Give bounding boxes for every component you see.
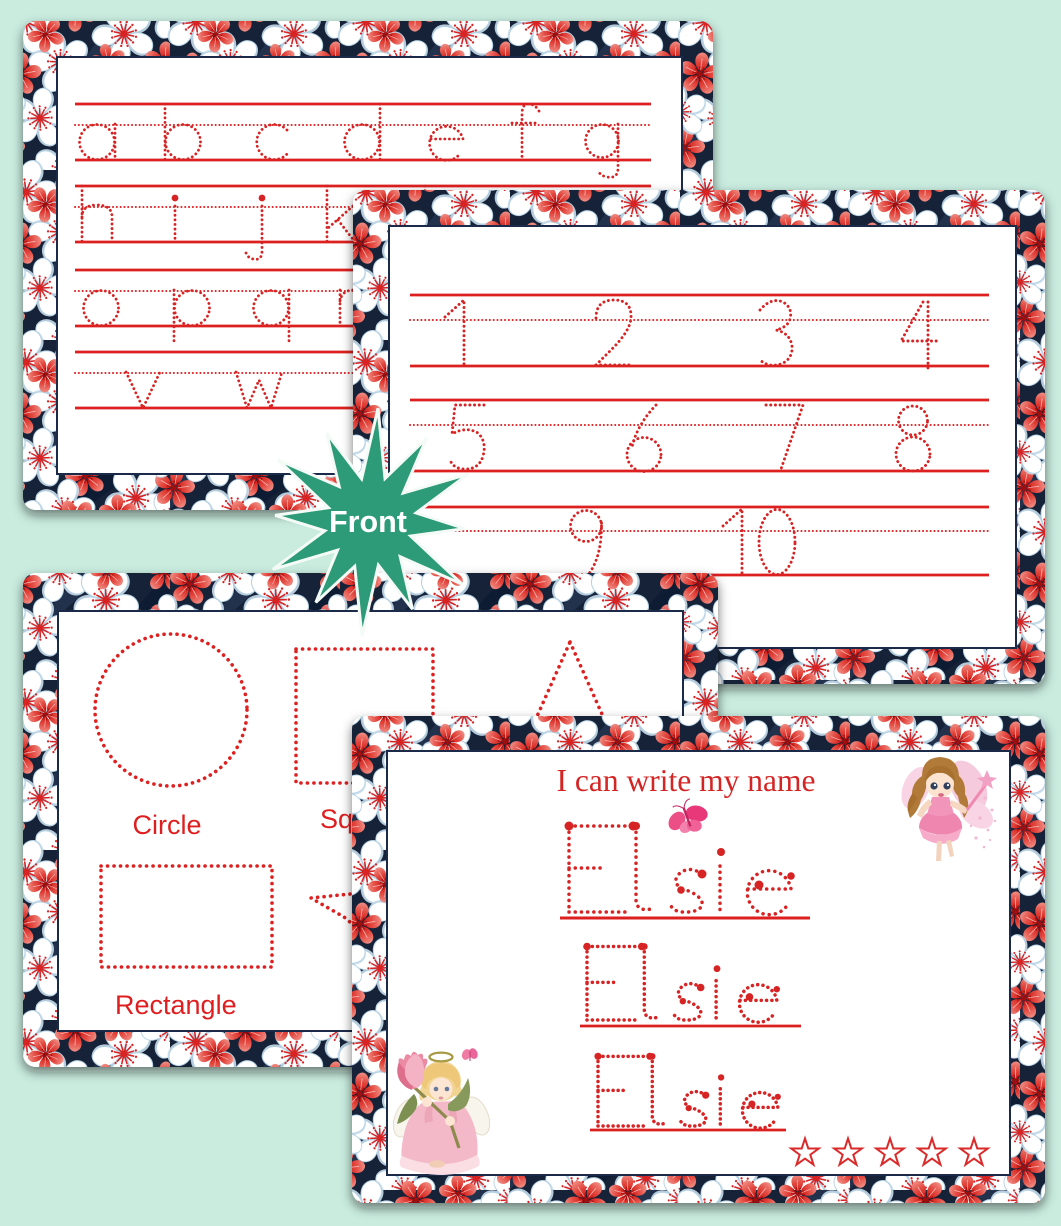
svg-text:Circle: Circle [132,810,201,840]
svg-text:Front: Front [329,505,407,539]
svg-text:I can write my name: I can write my name [557,763,816,798]
svg-text:Rectangle: Rectangle [115,990,237,1020]
